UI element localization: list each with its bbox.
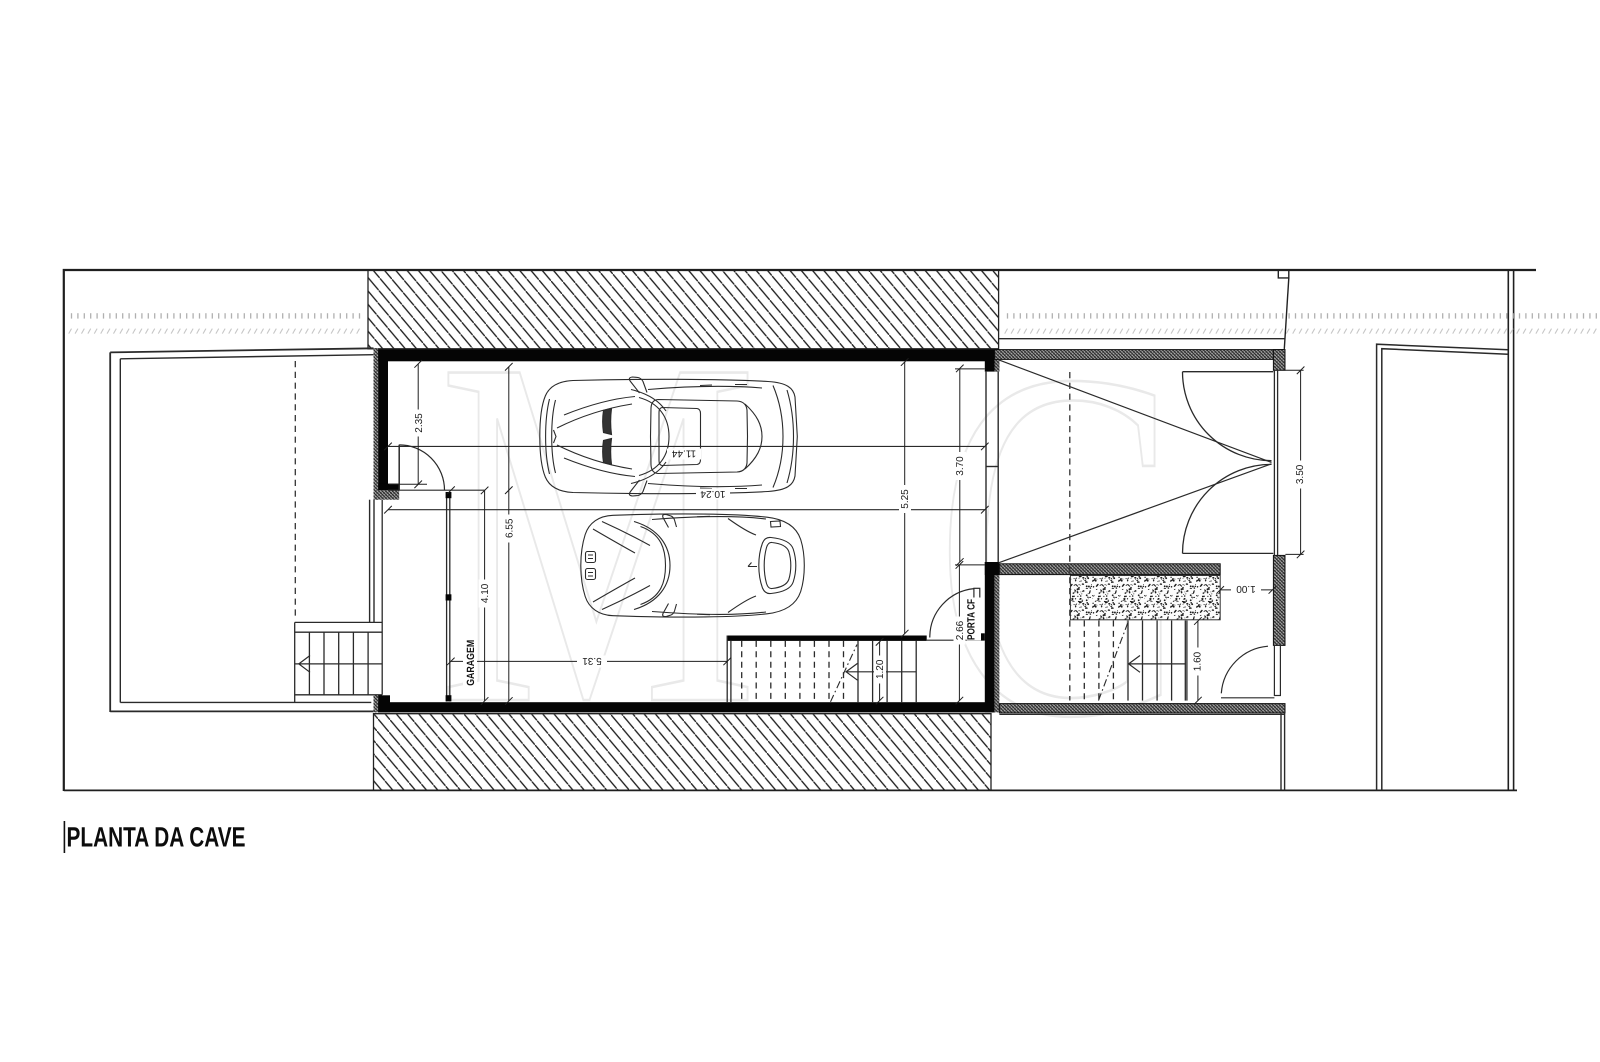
svg-text:PLANTA DA CAVE: PLANTA DA CAVE <box>67 822 246 853</box>
svg-text:5.31: 5.31 <box>582 655 602 666</box>
svg-text:1.20: 1.20 <box>875 659 886 679</box>
svg-text:5.25: 5.25 <box>900 489 911 509</box>
svg-text:3.50: 3.50 <box>1295 464 1306 484</box>
svg-text:1.00: 1.00 <box>1236 583 1256 594</box>
svg-text:4.10: 4.10 <box>480 583 491 603</box>
svg-text:PORTA CF: PORTA CF <box>965 599 977 640</box>
svg-text:6.55: 6.55 <box>504 518 515 538</box>
svg-text:1.60: 1.60 <box>1193 651 1204 671</box>
svg-text:2.35: 2.35 <box>414 413 425 433</box>
svg-text:2.66: 2.66 <box>955 620 966 640</box>
svg-text:GARAGEM: GARAGEM <box>465 640 477 686</box>
svg-text:10.24: 10.24 <box>700 488 725 499</box>
svg-text:11.44: 11.44 <box>671 448 696 459</box>
svg-text:3.70: 3.70 <box>955 456 966 476</box>
